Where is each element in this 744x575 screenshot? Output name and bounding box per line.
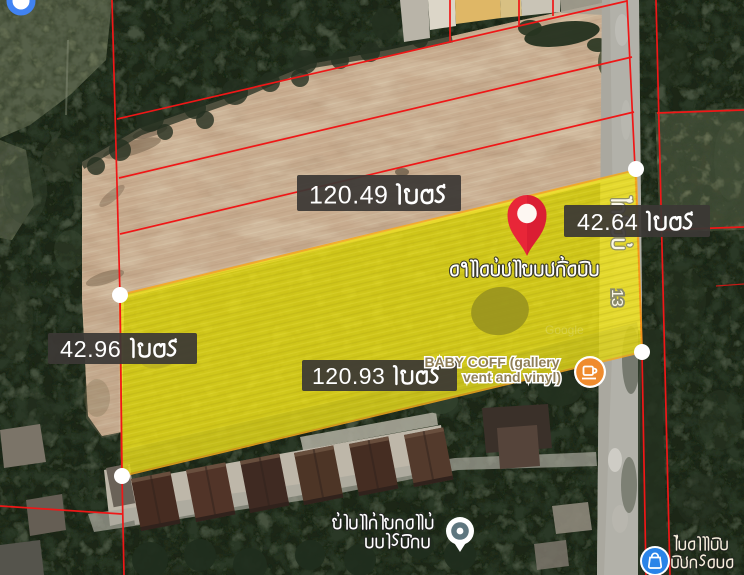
svg-text:Google: Google — [545, 323, 584, 337]
svg-text:42.96: 42.96 — [60, 336, 121, 362]
svg-text:13: 13 — [608, 289, 625, 307]
svg-text:42.64: 42.64 — [577, 209, 638, 235]
svg-text:120.93: 120.93 — [312, 363, 385, 389]
svg-text:vent and vinyl): vent and vinyl) — [463, 369, 561, 385]
svg-text:BABY COFF (gallery: BABY COFF (gallery — [424, 354, 559, 370]
svg-text:120.49: 120.49 — [309, 182, 388, 210]
